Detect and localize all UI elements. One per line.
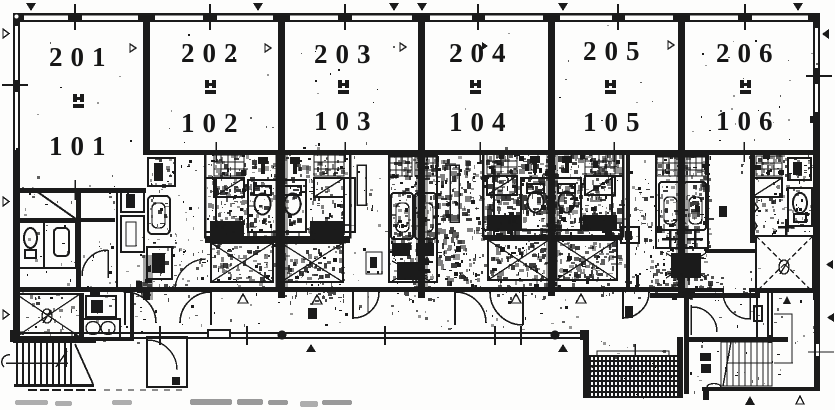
svg-text:205: 205 — [583, 36, 648, 66]
svg-text:206: 206 — [716, 38, 781, 68]
svg-text:204: 204 — [449, 38, 514, 68]
svg-text:103: 103 — [314, 106, 379, 136]
svg-text:101: 101 — [49, 131, 114, 161]
svg-text:106: 106 — [716, 106, 781, 136]
svg-text:202: 202 — [181, 38, 246, 68]
svg-text:102: 102 — [181, 108, 246, 138]
svg-text:203: 203 — [314, 39, 379, 69]
svg-text:105: 105 — [583, 107, 648, 137]
svg-text:201: 201 — [49, 42, 114, 72]
svg-text:104: 104 — [449, 107, 514, 137]
